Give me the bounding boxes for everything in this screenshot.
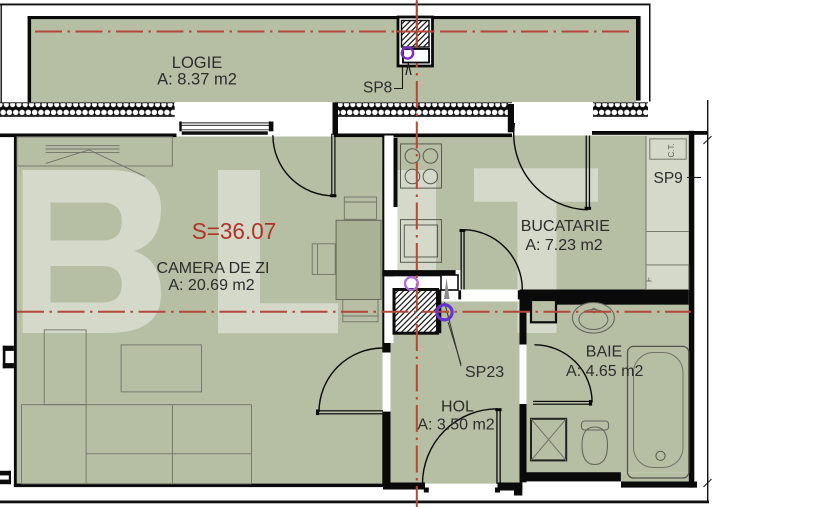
svg-text:A: 4.65 m2: A: 4.65 m2 (566, 363, 643, 380)
svg-text:SP23: SP23 (465, 364, 504, 381)
svg-text:S=36.07: S=36.07 (192, 218, 277, 244)
svg-text:SP8: SP8 (363, 80, 392, 97)
svg-text:HOL: HOL (441, 399, 474, 416)
svg-text:BAIE: BAIE (586, 344, 622, 361)
svg-text:A: 7.23 m2: A: 7.23 m2 (525, 237, 602, 254)
svg-text:SP9: SP9 (654, 170, 683, 187)
svg-text:A: 20.69 m2: A: 20.69 m2 (168, 277, 254, 294)
svg-text:CAMERA DE ZI: CAMERA DE ZI (157, 260, 270, 277)
svg-text:A: 8.37 m2: A: 8.37 m2 (157, 71, 237, 89)
svg-text:BUCATARIE: BUCATARIE (521, 218, 610, 235)
svg-text:C.T.: C.T. (667, 143, 676, 157)
svg-text:A: 3.50 m2: A: 3.50 m2 (417, 417, 494, 434)
svg-text:LOGIE: LOGIE (172, 54, 222, 72)
